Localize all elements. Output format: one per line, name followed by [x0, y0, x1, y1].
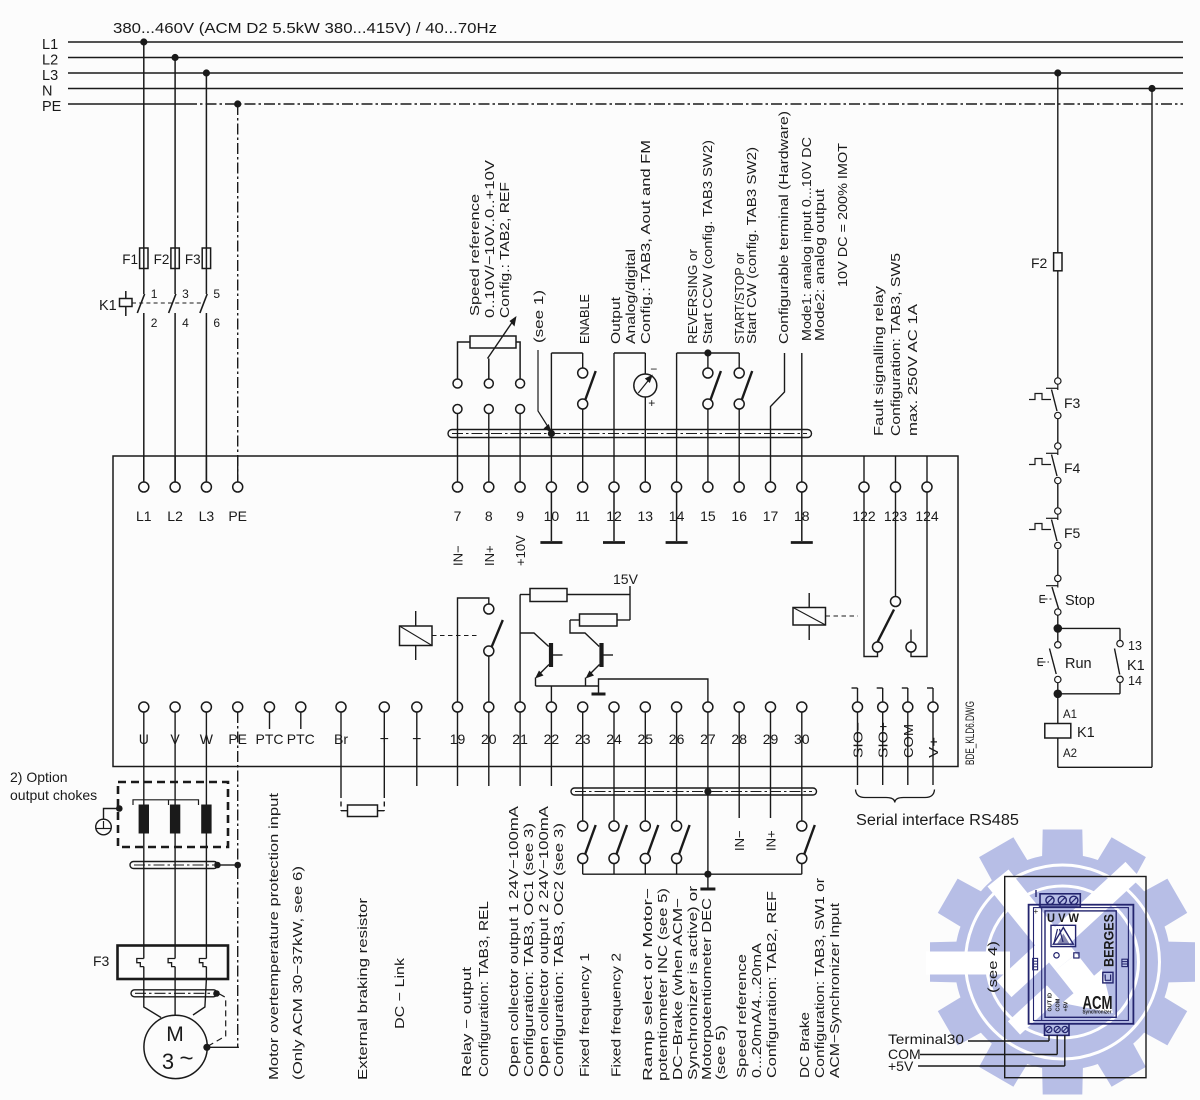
- svg-text:13: 13: [1128, 639, 1142, 653]
- svg-text:L2: L2: [42, 53, 58, 69]
- svg-text:F5: F5: [1064, 525, 1081, 541]
- svg-text:F3: F3: [1064, 395, 1081, 411]
- svg-text:Configuration: TAB3, OC2 (s: Configuration: TAB3, OC2 (see 3): [551, 823, 566, 1077]
- svg-text:9: 9: [516, 508, 524, 524]
- svg-text:Start CCW (config. TAB3 SW: Start CCW (config. TAB3 SW2): [700, 140, 715, 344]
- svg-text:15V: 15V: [613, 571, 639, 587]
- svg-text:Config.: TAB3, Aout and FM: Config.: TAB3, Aout and FM: [638, 140, 653, 344]
- svg-text:15: 15: [700, 508, 716, 524]
- svg-text:(see 1): (see 1): [531, 290, 546, 343]
- svg-text:16: 16: [731, 508, 747, 524]
- svg-text:ACM−Synchronizer Input: ACM−Synchronizer Input: [827, 903, 842, 1078]
- svg-text:PTC: PTC: [256, 731, 284, 747]
- svg-text:IN+: IN+: [482, 545, 497, 566]
- svg-text:Fault signalling relay: Fault signalling relay: [871, 285, 886, 436]
- svg-text:Run: Run: [1065, 656, 1092, 672]
- svg-text:L2: L2: [167, 508, 183, 524]
- svg-text:IN−: IN−: [451, 545, 466, 566]
- svg-text:F1: F1: [122, 252, 138, 267]
- svg-text:K1: K1: [99, 298, 117, 314]
- svg-text:BERGES: BERGES: [1102, 914, 1117, 967]
- svg-text:F2: F2: [154, 252, 170, 267]
- svg-text:potentiometer INC (see 5): potentiometer INC (see 5): [655, 888, 670, 1081]
- svg-text:Mode2: analog output: Mode2: analog output: [812, 189, 827, 341]
- svg-text:Fixed frequency 2: Fixed frequency 2: [609, 953, 624, 1077]
- svg-text:0..10V/−10V..0..+10V: 0..10V/−10V..0..+10V: [482, 160, 497, 318]
- svg-text:IN+: IN+: [764, 830, 779, 851]
- svg-text:ENABLE: ENABLE: [577, 294, 592, 344]
- svg-text:Configuration: TAB3, SW1 or: Configuration: TAB3, SW1 or: [812, 877, 827, 1078]
- svg-text:COM: COM: [1056, 998, 1062, 1011]
- svg-text:Stop: Stop: [1065, 593, 1095, 609]
- svg-text:Configurable terminal (Hardw: Configurable terminal (Hardware): [776, 111, 791, 344]
- svg-text:F4: F4: [1064, 460, 1081, 476]
- svg-text:DC − Link: DC − Link: [392, 957, 407, 1029]
- svg-text:OUT ID: OUT ID: [1048, 993, 1054, 1012]
- svg-text:A2: A2: [1063, 748, 1077, 760]
- svg-text:8: 8: [485, 508, 493, 524]
- svg-text:Synchronizer is active) or: Synchronizer is active) or: [685, 885, 700, 1080]
- svg-text:K1: K1: [1127, 658, 1145, 674]
- svg-text:+: +: [1034, 907, 1039, 916]
- svg-text:output chokes: output chokes: [10, 787, 97, 803]
- svg-text:2) Option: 2) Option: [10, 769, 68, 785]
- svg-text:M: M: [166, 1023, 184, 1046]
- svg-text:F3: F3: [185, 252, 201, 267]
- svg-text:Configuration: TAB3, REL: Configuration: TAB3, REL: [476, 901, 491, 1077]
- svg-text:Speed reference: Speed reference: [467, 194, 482, 316]
- svg-text:L1: L1: [42, 37, 58, 53]
- svg-text:U V W: U V W: [1047, 913, 1079, 925]
- svg-text:3: 3: [162, 1049, 174, 1074]
- svg-text:7: 7: [454, 508, 462, 524]
- svg-text:Ramp select or Motor−: Ramp select or Motor−: [640, 888, 655, 1081]
- svg-text:(see 5): (see 5): [713, 1025, 728, 1080]
- svg-text:11: 11: [575, 508, 590, 524]
- svg-text:Open collector output 1 24: Open collector output 1 24V−100mA: [506, 806, 521, 1077]
- svg-text:K1: K1: [1077, 725, 1095, 741]
- svg-text:(Only ACM 30−37kW, see 6): (Only ACM 30−37kW, see 6): [290, 866, 305, 1080]
- svg-text:Output: Output: [608, 297, 623, 344]
- svg-text:14: 14: [1128, 674, 1142, 688]
- svg-text:PTC: PTC: [287, 731, 315, 747]
- svg-text:380...460V (ACM D2 5.5kW 3: 380...460V (ACM D2 5.5kW 380...415V) / 4…: [113, 20, 497, 37]
- svg-text:REVERSING or: REVERSING or: [685, 248, 700, 344]
- svg-text:+10V: +10V: [513, 535, 528, 566]
- svg-text:IN−: IN−: [732, 830, 747, 851]
- svg-text:10V DC = 200% IMOT: 10V DC = 200% IMOT: [835, 143, 850, 287]
- svg-text:~: ~: [179, 1045, 193, 1072]
- svg-text:3: 3: [182, 287, 189, 301]
- svg-text:Serial interface RS485: Serial interface RS485: [856, 812, 1019, 829]
- svg-text:F3: F3: [93, 953, 110, 969]
- svg-text:N: N: [42, 84, 52, 100]
- svg-text:PE: PE: [42, 99, 62, 115]
- svg-text:5: 5: [213, 287, 220, 301]
- svg-text:Synchronizer: Synchronizer: [1083, 1010, 1112, 1016]
- svg-text:PE: PE: [228, 508, 247, 524]
- svg-text:BDE_KLD6.DWG: BDE_KLD6.DWG: [965, 701, 977, 765]
- svg-text:Configuration: TAB3, OC1 (s: Configuration: TAB3, OC1 (see 3): [521, 823, 536, 1077]
- svg-text:Open collector output 2 24: Open collector output 2 24V−100mA: [536, 806, 551, 1077]
- svg-text:L3: L3: [199, 508, 215, 524]
- svg-text:+: +: [648, 396, 655, 410]
- svg-text:F2: F2: [1031, 255, 1048, 271]
- svg-text:External braking resistor: External braking resistor: [355, 897, 370, 1080]
- svg-text:DC−Brake (when ACM−: DC−Brake (when ACM−: [670, 898, 685, 1080]
- svg-text:Fixed frequency 1: Fixed frequency 1: [577, 953, 592, 1077]
- svg-text:Configuration: TAB2, REF: Configuration: TAB2, REF: [764, 891, 779, 1078]
- svg-text:max. 250V AC 1A: max. 250V AC 1A: [905, 304, 920, 436]
- svg-text:Motorpotentiometer DEC: Motorpotentiometer DEC: [699, 898, 714, 1080]
- svg-text:1: 1: [151, 287, 158, 301]
- svg-text:Motor overtemperature protec: Motor overtemperature protection input: [266, 793, 281, 1080]
- svg-text:17: 17: [763, 508, 779, 524]
- svg-text:Speed reference: Speed reference: [734, 954, 749, 1078]
- svg-text:Start CW (config. TAB3 SW2: Start CW (config. TAB3 SW2): [744, 147, 759, 344]
- svg-text:+5V: +5V: [1064, 1001, 1070, 1011]
- svg-text:0...20mA/4...20mA: 0...20mA/4...20mA: [749, 943, 764, 1078]
- svg-text:Relay − output: Relay − output: [459, 967, 474, 1077]
- svg-text:2: 2: [151, 316, 158, 330]
- svg-text:Terminal30: Terminal30: [888, 1031, 964, 1047]
- svg-text:13: 13: [638, 508, 654, 524]
- svg-text:A1: A1: [1063, 709, 1077, 721]
- svg-text:Configuration: TAB3, SW5: Configuration: TAB3, SW5: [888, 253, 903, 436]
- svg-text:6: 6: [213, 316, 220, 330]
- svg-text:Config.: TAB2, REF: Config.: TAB2, REF: [497, 182, 512, 318]
- svg-text:Analog/digital: Analog/digital: [623, 249, 638, 344]
- svg-text:+5V: +5V: [888, 1058, 914, 1074]
- svg-text:L1: L1: [136, 508, 152, 524]
- svg-text:L3: L3: [42, 68, 58, 84]
- svg-text:−: −: [650, 362, 657, 376]
- svg-text:(see 4): (see 4): [985, 941, 1000, 993]
- svg-text:4: 4: [182, 316, 189, 330]
- svg-text:DC Brake: DC Brake: [797, 1012, 812, 1078]
